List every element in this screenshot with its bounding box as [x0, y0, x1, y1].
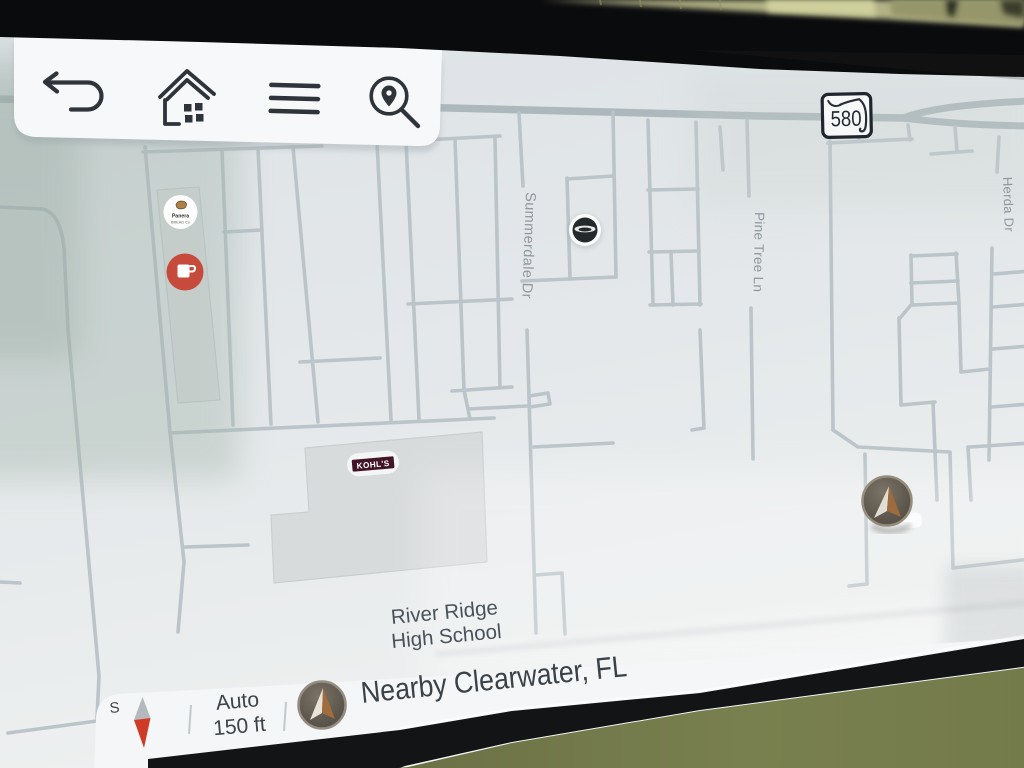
svg-text:S: S	[109, 699, 120, 717]
svg-text:Pine Tree Ln: Pine Tree Ln	[751, 212, 767, 292]
svg-text:Panera: Panera	[172, 214, 189, 220]
svg-text:Herda Dr: Herda Dr	[1000, 177, 1017, 233]
svg-text:Auto: Auto	[215, 688, 260, 715]
svg-text:580: 580	[830, 106, 862, 132]
svg-text:150 ft: 150 ft	[212, 713, 267, 741]
svg-text:BREAD Co: BREAD Co	[171, 221, 190, 225]
